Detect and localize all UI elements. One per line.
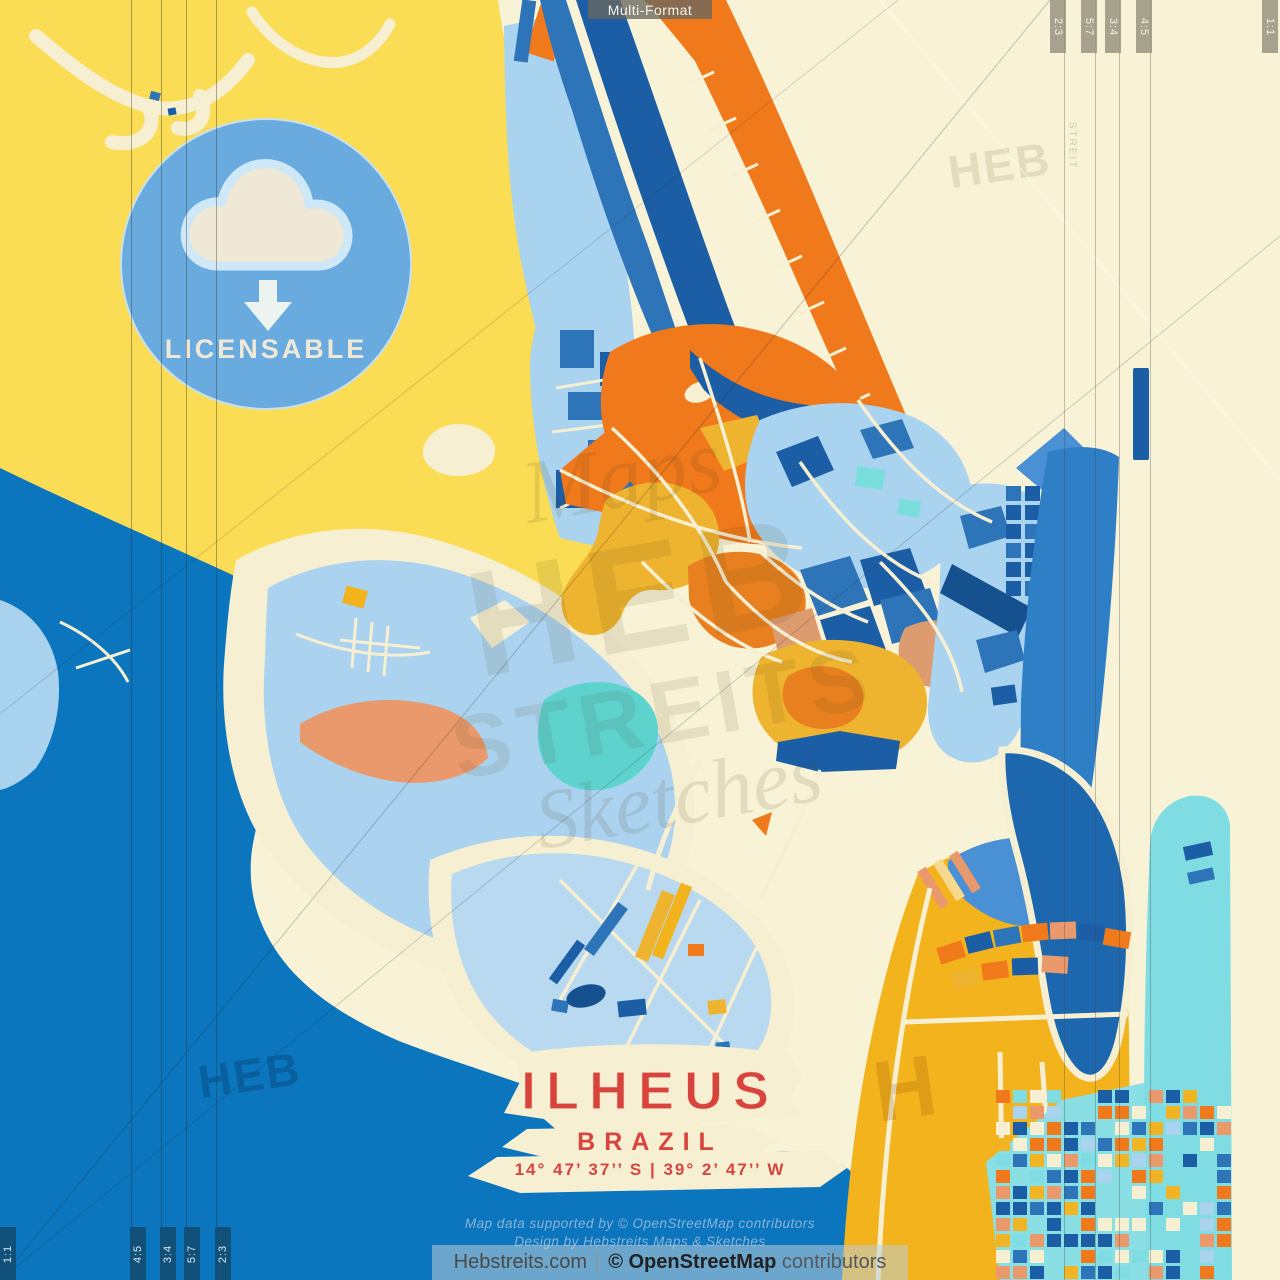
format-tab-label: 2:3 [217,1244,229,1262]
contributors-text: contributors [782,1251,887,1274]
licensable-badge[interactable]: LICENSABLE [120,118,412,410]
attribution-bar: Hebstreits.com|© OpenStreetMap contribut… [432,1245,908,1280]
format-tab-2-3-top[interactable]: 2:3 [1050,0,1066,53]
corner-watermark-streit: STREIT [1066,122,1077,170]
format-tab-4-5-top[interactable]: 4:5 [1136,0,1152,53]
poster-coordinates: 14° 47’ 37’’ S | 39° 2’ 47’’ W [420,1160,880,1180]
format-tab-3-4-bottom[interactable]: 3:4 [160,1227,176,1280]
format-tab-label: 3:4 [1107,17,1119,35]
separator: | [587,1251,608,1274]
format-tab-2-3-bottom[interactable]: 2:3 [215,1227,231,1280]
format-tab-label: 1:1 [2,1244,14,1262]
format-tab-5-7-bottom[interactable]: 5:7 [184,1227,200,1280]
poster-title: ILHEUS [450,1060,850,1122]
format-tab-4-5-bottom[interactable]: 4:5 [130,1227,146,1280]
poster-canvas: Maps HEB STREITS Sketches HEB STREIT HEB… [0,0,1280,1280]
format-tab-label: 3:4 [162,1244,174,1262]
poster-subtitle: BRAZIL [450,1128,850,1157]
site-link[interactable]: Hebstreits.com [454,1251,587,1274]
format-tab-label: 4:5 [132,1244,144,1262]
format-tab-label: 2:3 [1052,17,1064,35]
multi-format-label[interactable]: Multi-Format [588,0,712,19]
format-tab-3-4-top[interactable]: 3:4 [1105,0,1121,53]
format-tab-label: 5:7 [1083,17,1095,35]
cloud-download-icon [122,146,410,356]
format-tab-label: 4:5 [1138,17,1150,35]
format-tab-1-1-bottom[interactable]: 1:1 [0,1227,16,1280]
format-tab-label: 5:7 [186,1244,198,1262]
format-tab-5-7-top[interactable]: 5:7 [1081,0,1097,53]
format-tab-label: 1:1 [1264,17,1276,35]
osm-link[interactable]: © OpenStreetMap [608,1251,776,1274]
multi-format-text: Multi-Format [608,2,693,18]
format-tab-1-1-top[interactable]: 1:1 [1262,0,1278,53]
badge-label: LICENSABLE [122,334,410,365]
